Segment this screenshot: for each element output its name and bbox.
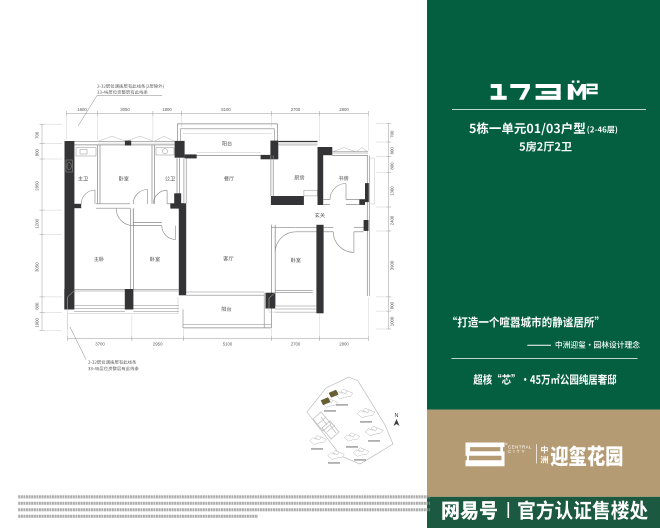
svg-text:2800: 2800 <box>339 107 349 112</box>
svg-text:5100: 5100 <box>223 342 233 347</box>
svg-text:5100: 5100 <box>221 107 231 112</box>
svg-text:3700: 3700 <box>95 342 105 347</box>
svg-text:2950: 2950 <box>153 342 163 347</box>
svg-text:800: 800 <box>390 301 395 309</box>
svg-text:2800: 2800 <box>339 342 349 347</box>
svg-text:1800: 1800 <box>77 107 87 112</box>
svg-text:N: N <box>395 413 399 419</box>
svg-text:700: 700 <box>35 131 40 139</box>
svg-text:3050: 3050 <box>35 262 40 272</box>
svg-text:1000: 1000 <box>390 316 395 326</box>
svg-text:700: 700 <box>390 130 395 138</box>
svg-text:3050: 3050 <box>120 107 130 112</box>
svg-text:2850: 2850 <box>35 181 40 191</box>
svg-text:800: 800 <box>390 147 395 155</box>
svg-text:800: 800 <box>35 302 40 310</box>
svg-text:1800: 1800 <box>162 107 172 112</box>
svg-text:1200: 1200 <box>35 218 40 228</box>
svg-text:2400: 2400 <box>390 215 395 225</box>
svg-text:1000: 1000 <box>35 318 40 328</box>
svg-text:1300: 1300 <box>390 186 395 196</box>
svg-text:2700: 2700 <box>291 342 301 347</box>
svg-text:CITY: CITY <box>508 449 527 454</box>
svg-text:2700: 2700 <box>291 107 301 112</box>
svg-text:800: 800 <box>390 162 395 170</box>
svg-text:800: 800 <box>35 149 40 157</box>
svg-text:3900: 3900 <box>390 260 395 270</box>
